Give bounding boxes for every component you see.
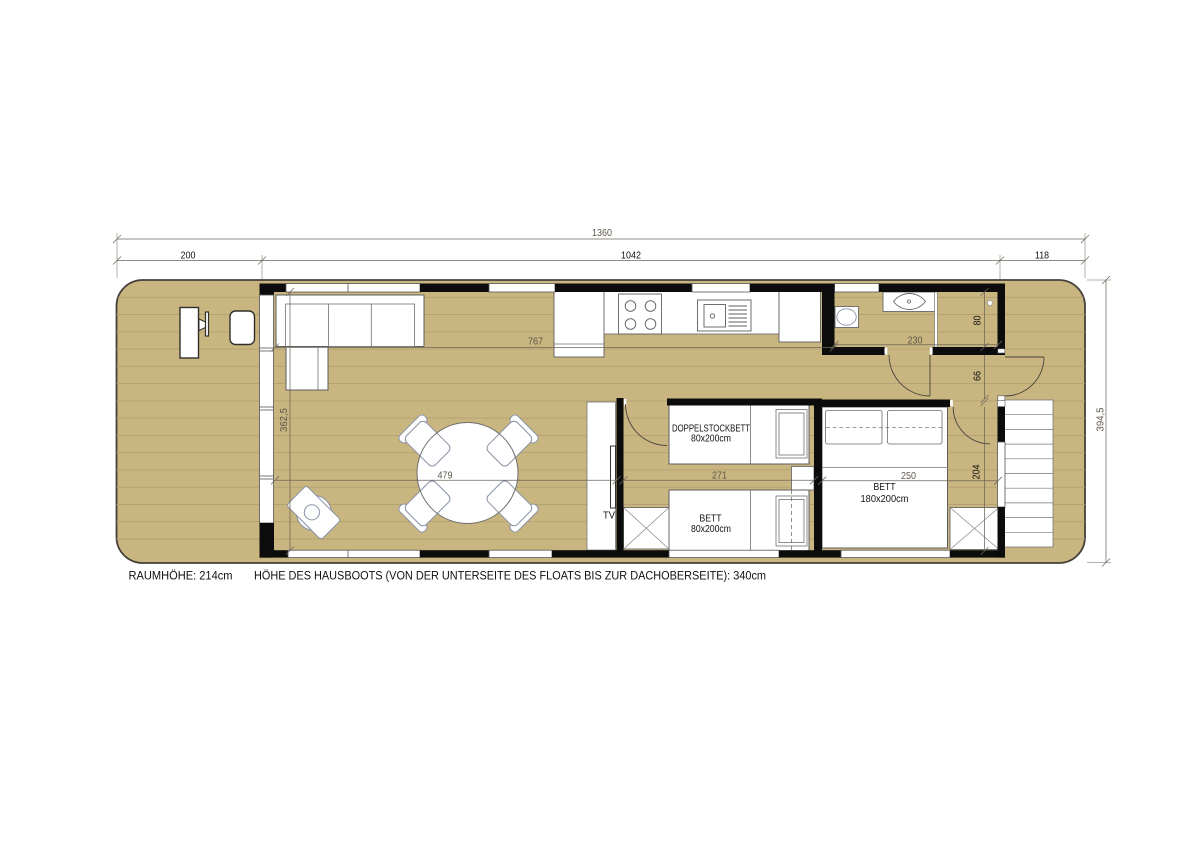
- svg-text:HÖHE DES HAUSBOOTS (VON DER UN: HÖHE DES HAUSBOOTS (VON DER UNTERSEITE D…: [254, 569, 766, 583]
- svg-text:200: 200: [181, 249, 196, 261]
- svg-text:66: 66: [972, 371, 984, 381]
- svg-text:1042: 1042: [621, 249, 641, 261]
- svg-text:230: 230: [908, 334, 923, 346]
- svg-text:RAUMHÖHE: 214cm: RAUMHÖHE: 214cm: [129, 569, 233, 583]
- svg-text:271: 271: [712, 469, 727, 481]
- svg-text:250: 250: [901, 470, 916, 482]
- svg-text:394,5: 394,5: [1095, 407, 1107, 431]
- svg-text:1360: 1360: [592, 227, 612, 239]
- svg-text:80: 80: [972, 315, 984, 325]
- svg-text:118: 118: [1035, 249, 1049, 261]
- svg-text:479: 479: [438, 469, 453, 481]
- svg-text:180x200cm: 180x200cm: [861, 494, 909, 505]
- svg-text:767: 767: [528, 335, 543, 347]
- svg-text:362,5: 362,5: [278, 408, 290, 432]
- svg-text:BETT: BETT: [874, 482, 897, 493]
- svg-text:80x200cm: 80x200cm: [691, 434, 731, 445]
- svg-text:80x200cm: 80x200cm: [691, 524, 731, 535]
- svg-text:BETT: BETT: [700, 513, 723, 524]
- svg-text:TV: TV: [603, 511, 615, 522]
- svg-text:204: 204: [971, 464, 983, 479]
